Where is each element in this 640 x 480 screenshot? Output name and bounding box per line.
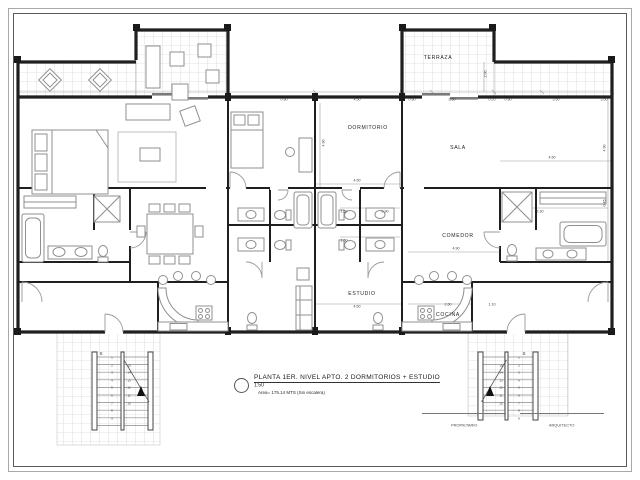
stair-step-number: 11 <box>499 395 502 398</box>
stair-step-number: 5 <box>111 387 113 390</box>
stair-direction-label: S <box>522 352 525 357</box>
stair-step-number: 10 <box>127 402 130 405</box>
drawing-sheet: TERRAZA DORMITORIO SALA COMEDOR ESTUDIO … <box>0 0 640 480</box>
stair-step-number: 13 <box>127 379 130 382</box>
stair-step-number: 15 <box>127 364 130 367</box>
stair-step-number: 12 <box>127 387 130 390</box>
stair-step-number: 13 <box>499 379 502 382</box>
stair-direction-label: S <box>99 352 102 357</box>
plan-title: PLANTA 1ER. NIVEL APTO. 2 DORMITORIOS + … <box>254 374 440 383</box>
stair-step-number: 4 <box>518 379 520 382</box>
stair-step-number: 2 <box>111 364 113 367</box>
stair-step-number: 14 <box>499 372 502 375</box>
stair-step-number: 7 <box>111 402 113 405</box>
stair-step-number: 14 <box>127 372 130 375</box>
signature-label-owner: PROPIETARIO <box>451 424 477 428</box>
stair-step-number: 3 <box>518 372 520 375</box>
stair-step-number: 9 <box>111 417 113 420</box>
stair-step-number: 11 <box>127 395 130 398</box>
stair-step-number: 12 <box>499 387 502 390</box>
stair-layer: S S 123456789151413121110 12345678915141… <box>0 0 640 480</box>
stair-step-number: 15 <box>499 364 502 367</box>
stair-step-number: 1 <box>111 357 113 360</box>
stair-step-number: 3 <box>111 372 113 375</box>
signature-line-owner: PROPIETARIO <box>422 413 506 432</box>
plan-scale: 1:50 <box>254 383 264 388</box>
signature-label-architect: ARQUITECTO <box>549 424 575 428</box>
stair-step-number: 4 <box>111 379 113 382</box>
stair-step-number: 6 <box>111 395 113 398</box>
stair-step-number: 6 <box>518 395 520 398</box>
stair-step-number: 2 <box>518 364 520 367</box>
plan-area-note: Area= 175.14 MTS (Sin escalera) <box>258 391 325 396</box>
stair-step-number: 5 <box>518 387 520 390</box>
signature-line-architect: ARQUITECTO <box>520 413 604 432</box>
stair-step-number: 1 <box>518 357 520 360</box>
title-block-bullet-circle <box>234 378 249 393</box>
stair-step-number: 7 <box>518 402 520 405</box>
stair-step-number: 8 <box>111 410 113 413</box>
stair-step-number: 10 <box>499 402 502 405</box>
